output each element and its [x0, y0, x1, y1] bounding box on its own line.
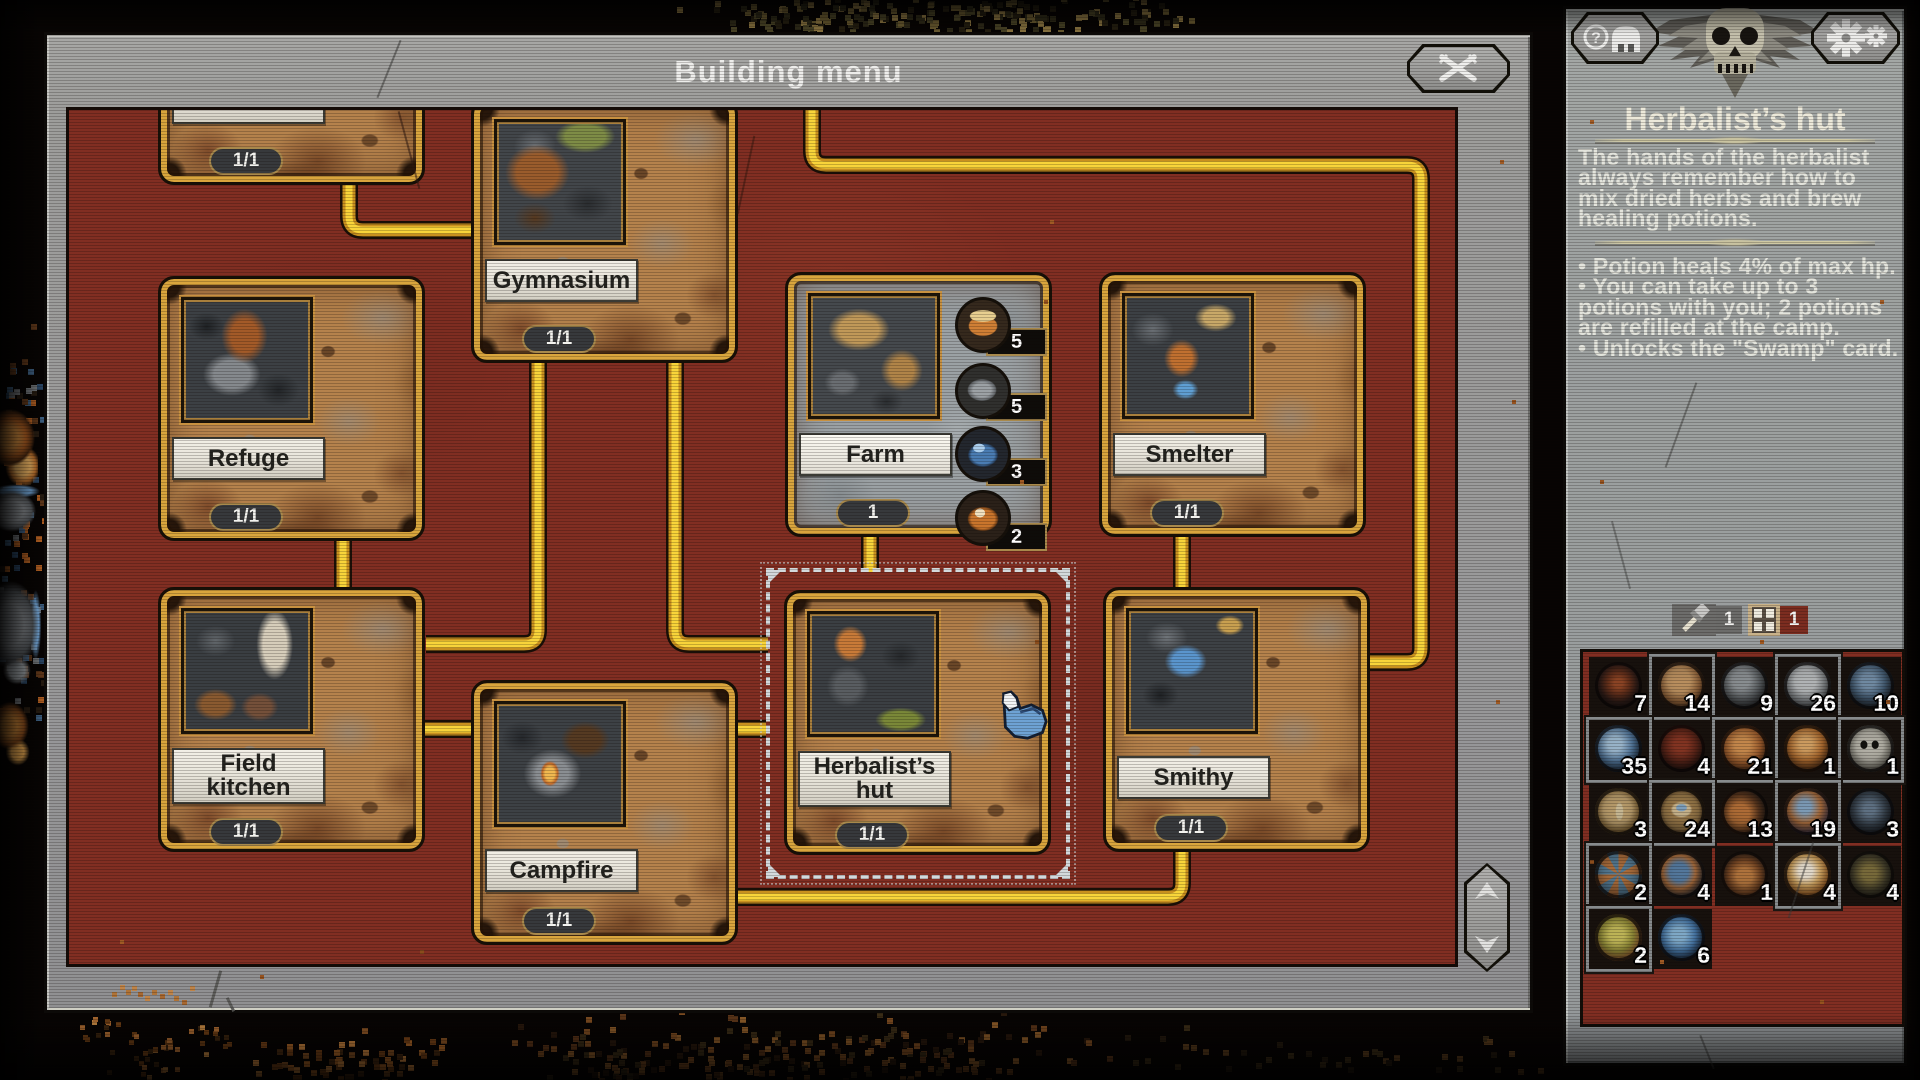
svg-text:?: ? — [1591, 30, 1601, 47]
